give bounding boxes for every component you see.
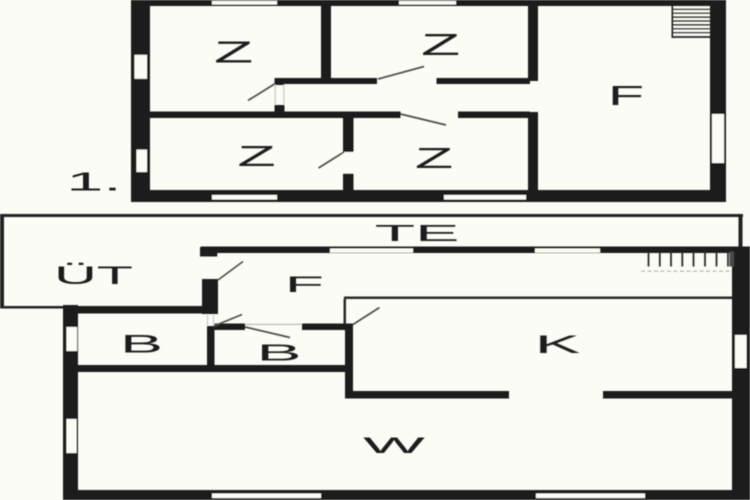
- svg-text:ÜT: ÜT: [54, 262, 133, 290]
- svg-text:Z: Z: [415, 143, 453, 175]
- svg-text:F: F: [285, 273, 324, 297]
- svg-text:TE: TE: [375, 220, 460, 246]
- svg-text:K: K: [535, 330, 581, 358]
- svg-text:1.: 1.: [66, 167, 121, 196]
- svg-text:W: W: [363, 434, 425, 458]
- svg-text:B: B: [120, 331, 163, 358]
- svg-text:Z: Z: [421, 28, 460, 62]
- svg-text:F: F: [608, 80, 644, 111]
- svg-text:Z: Z: [237, 141, 275, 173]
- svg-text:B: B: [256, 339, 301, 365]
- svg-text:Z: Z: [214, 35, 253, 69]
